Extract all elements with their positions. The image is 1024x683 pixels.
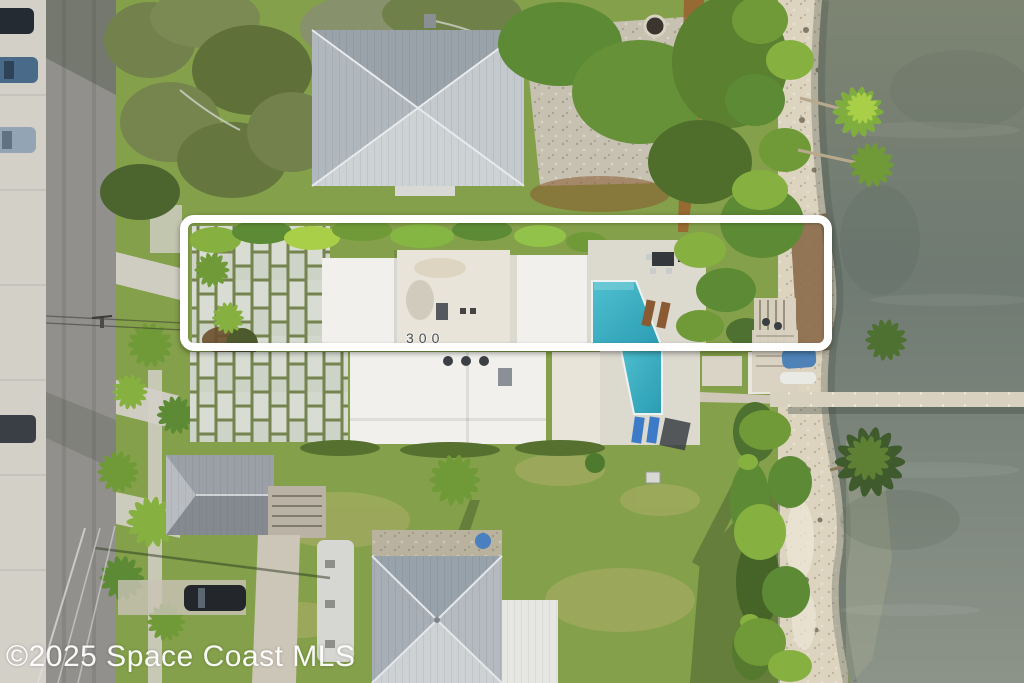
cupola: [424, 14, 436, 28]
second-lot: [190, 345, 788, 458]
parking-strip: [0, 0, 46, 683]
hedge-row: [300, 440, 605, 458]
shrub: [585, 453, 605, 473]
mulch-bed: [530, 176, 670, 212]
exterior-stairs: [268, 486, 326, 538]
aerial-photo: 300: [0, 0, 1024, 683]
paver-driveway-2: [190, 352, 348, 442]
gable-house: [166, 455, 274, 535]
mls-watermark: ©2025 Space Coast MLS: [6, 640, 355, 674]
utility-pad: [646, 472, 660, 483]
property-boundary-highlight: [180, 215, 832, 351]
car-dark-gray: [0, 415, 36, 443]
metal-roof-house: [372, 556, 502, 683]
parked-car-driveway: [184, 585, 246, 611]
boat-white: [780, 372, 816, 384]
hvac-unit: [498, 368, 512, 386]
fire-pit: [645, 16, 665, 36]
blue-tarp: [475, 533, 491, 549]
